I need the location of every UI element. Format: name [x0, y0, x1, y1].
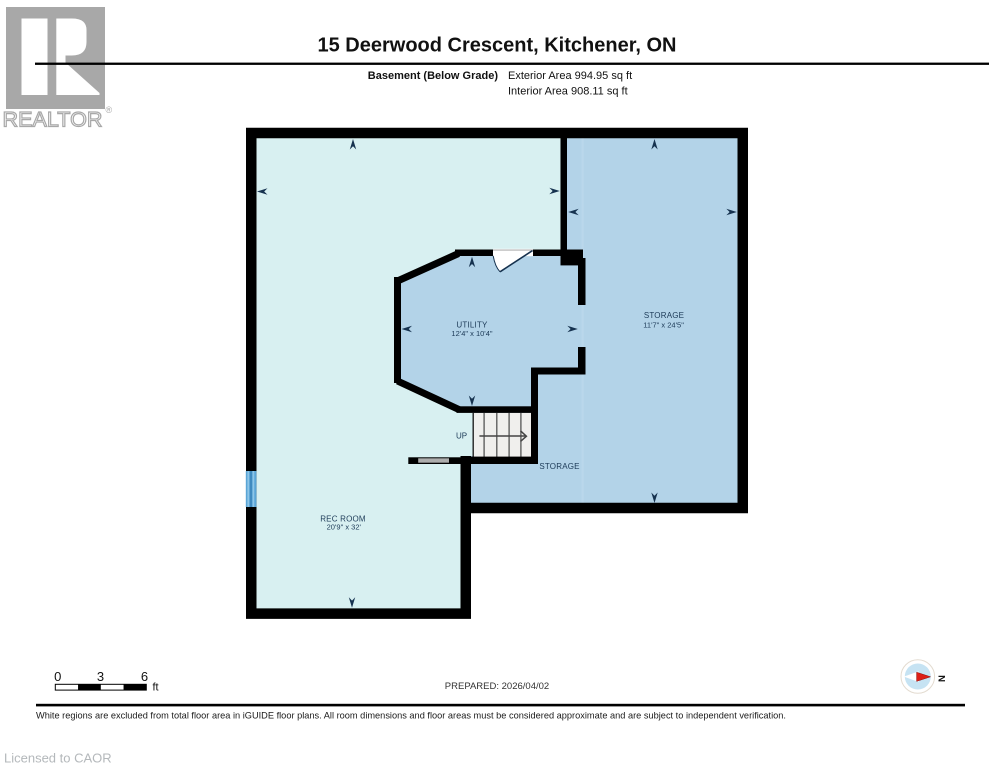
- svg-text:STORAGE: STORAGE: [644, 311, 684, 320]
- svg-text:ft: ft: [153, 682, 159, 694]
- svg-text:Interior Area 908.11 sq ft: Interior Area 908.11 sq ft: [508, 86, 628, 98]
- svg-text:UP: UP: [456, 431, 467, 440]
- svg-text:N: N: [935, 675, 946, 682]
- svg-text:0: 0: [54, 669, 61, 684]
- svg-text:Basement (Below Grade): Basement (Below Grade): [368, 70, 499, 82]
- svg-text:6: 6: [141, 669, 148, 684]
- svg-text:Exterior Area 994.95 sq ft: Exterior Area 994.95 sq ft: [508, 70, 632, 82]
- svg-text:Licensed to CAOR: Licensed to CAOR: [4, 751, 112, 766]
- svg-text:11'7" x 24'5": 11'7" x 24'5": [643, 320, 684, 329]
- svg-text:White regions are excluded fro: White regions are excluded from total fl…: [36, 711, 786, 721]
- svg-text:20'9" x 32': 20'9" x 32': [327, 522, 362, 531]
- svg-text:STORAGE: STORAGE: [539, 462, 579, 471]
- svg-text:®: ®: [106, 105, 113, 115]
- svg-text:REALTOR: REALTOR: [3, 108, 103, 132]
- svg-text:12'4" x 10'4": 12'4" x 10'4": [451, 329, 492, 338]
- svg-text:PREPARED: 2026/04/02: PREPARED: 2026/04/02: [445, 681, 549, 692]
- svg-text:15 Deerwood Crescent, Kitchene: 15 Deerwood Crescent, Kitchener, ON: [317, 35, 676, 57]
- svg-text:3: 3: [97, 669, 104, 684]
